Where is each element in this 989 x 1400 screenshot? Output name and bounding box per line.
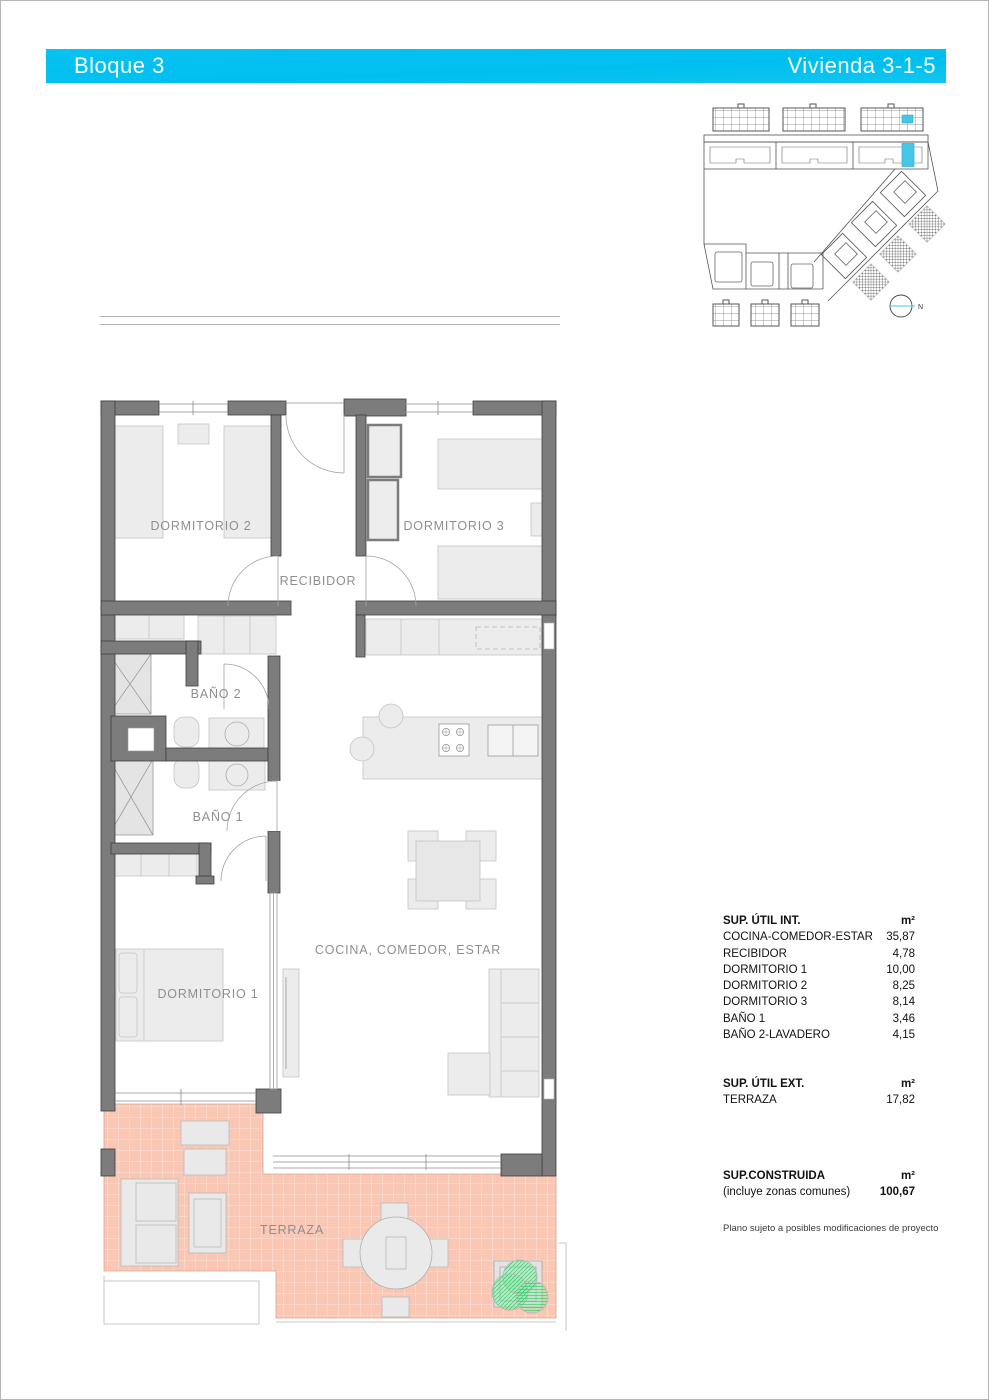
unit-label: m² <box>901 1076 915 1092</box>
parking-grids-top <box>713 104 923 131</box>
bar-stool <box>350 737 374 761</box>
highlighted-parking-spot <box>902 115 913 123</box>
room-label-dormitorio3: DORMITORIO 3 <box>403 519 504 533</box>
tv-unit <box>283 969 299 1077</box>
table-row: BAÑO 13,46 <box>723 1011 915 1027</box>
table-row: DORMITORIO 110,00 <box>723 962 915 978</box>
unit-title: Vivienda 3-1-5 <box>788 53 936 79</box>
room-label-bano1: BAÑO 1 <box>193 810 244 824</box>
table-row: RECIBIDOR4,78 <box>723 946 915 962</box>
terrace-table <box>360 1217 432 1289</box>
building-blocks-row <box>704 142 928 169</box>
floor-plan: DORMITORIO 2 DORMITORIO 3 RECIBIDOR BAÑO… <box>96 391 576 1341</box>
kitchen-island <box>350 704 544 779</box>
table-header: SUP. ÚTIL INT. m² <box>723 913 915 929</box>
table-header: SUP. ÚTIL EXT. m² <box>723 1076 915 1092</box>
parking-grids-bottom <box>713 300 819 326</box>
site-plan-map: N <box>691 96 961 336</box>
dining-set <box>408 831 496 909</box>
table-row: COCINA-COMEDOR-ESTAR35,87 <box>723 929 915 945</box>
section-line-bottom <box>100 324 560 325</box>
highlighted-unit <box>902 144 914 167</box>
room-label-recibidor: RECIBIDOR <box>280 574 357 588</box>
built-value: 100,67 <box>880 1185 915 1201</box>
table-title: SUP.CONSTRUIDA <box>723 1169 825 1185</box>
table-row: DORMITORIO 38,14 <box>723 994 915 1010</box>
access-road <box>704 135 928 142</box>
room-label-terraza: TERRAZA <box>260 1223 324 1237</box>
section-line-top <box>100 316 560 317</box>
kitchen-counter <box>366 619 544 655</box>
table-row: DORMITORIO 28,25 <box>723 978 915 994</box>
room-label-dormitorio1: DORMITORIO 1 <box>157 987 258 1001</box>
block-title: Bloque 3 <box>74 53 165 79</box>
room-label-dormitorio2: DORMITORIO 2 <box>150 519 251 533</box>
table-row: TERRAZA17,82 <box>723 1092 915 1108</box>
room-label-bano2: BAÑO 2 <box>191 687 242 701</box>
disclaimer-note: Plano sujeto a posibles modificaciones d… <box>723 1223 943 1234</box>
glass-partition <box>270 893 277 1089</box>
villa-outlines <box>715 171 926 288</box>
plan-sheet: Bloque 3 Vivienda 3-1-5 <box>0 0 989 1400</box>
built-subtitle: (incluye zonas comunes) <box>723 1185 850 1201</box>
table-header: SUP.CONSTRUIDA m² <box>723 1169 915 1185</box>
unit-label: m² <box>901 913 915 929</box>
windows <box>115 401 501 1170</box>
room-label-cocina: COCINA, COMEDOR, ESTAR <box>315 943 501 957</box>
table-title: SUP. ÚTIL EXT. <box>723 1076 804 1092</box>
built-area-table: SUP.CONSTRUIDA m² (incluye zonas comunes… <box>723 1169 915 1200</box>
bar-stool <box>379 704 403 728</box>
unit-label: m² <box>901 1169 915 1185</box>
title-bar: Bloque 3 Vivienda 3-1-5 <box>46 49 946 83</box>
sofa <box>448 969 539 1097</box>
north-label: N <box>918 304 923 311</box>
table-title: SUP. ÚTIL INT. <box>723 913 801 929</box>
north-compass-icon: N <box>890 295 923 317</box>
table-row: (incluye zonas comunes) 100,67 <box>723 1185 915 1201</box>
interior-areas-table: SUP. ÚTIL INT. m² COCINA-COMEDOR-ESTAR35… <box>723 913 915 1043</box>
table-row: BAÑO 2-LAVADERO4,15 <box>723 1027 915 1043</box>
exterior-areas-table: SUP. ÚTIL EXT. m² TERRAZA17,82 <box>723 1076 915 1109</box>
